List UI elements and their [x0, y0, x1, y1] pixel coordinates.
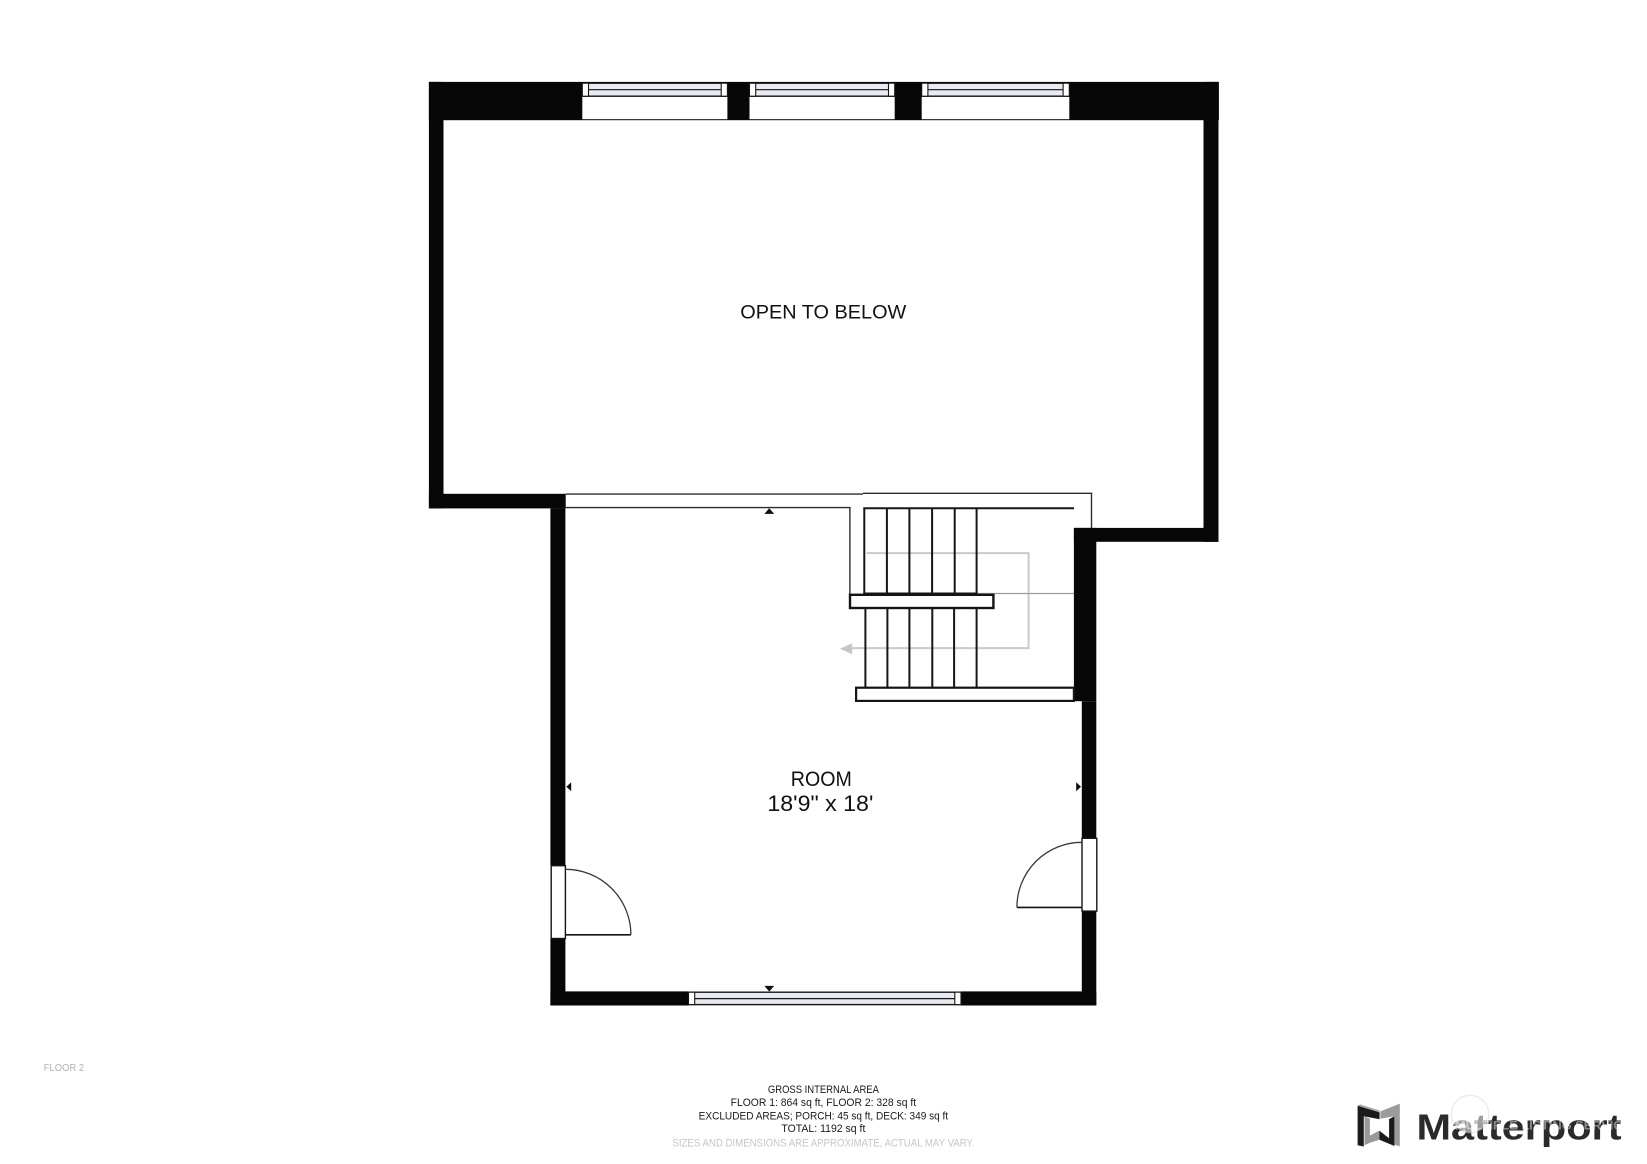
svg-text:TOTAL: 1192 sq ft: TOTAL: 1192 sq ft [781, 1123, 865, 1135]
svg-text:SIZES AND DIMENSIONS ARE APPRO: SIZES AND DIMENSIONS ARE APPROXIMATE, AC… [672, 1138, 974, 1150]
svg-text:OPEN TO BELOW: OPEN TO BELOW [740, 302, 906, 324]
svg-text:FLOOR 2: FLOOR 2 [44, 1063, 85, 1074]
svg-text:GROSS INTERNAL AREA: GROSS INTERNAL AREA [768, 1084, 880, 1096]
svg-text:ROOM: ROOM [791, 766, 852, 791]
svg-text:18'9" x 18': 18'9" x 18' [767, 791, 873, 816]
svg-text:EXCLUDED AREAS; PORCH: 45 sq f: EXCLUDED AREAS; PORCH: 45 sq ft, DECK: 3… [699, 1110, 949, 1122]
svg-text:FLOOR 1: 864 sq ft, FLOOR 2: 3: FLOOR 1: 864 sq ft, FLOOR 2: 328 sq ft [731, 1097, 917, 1109]
